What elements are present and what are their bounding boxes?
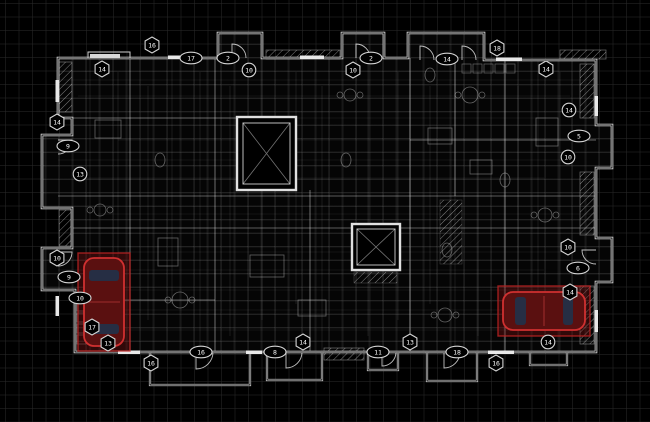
callout-bubble-hex: 14 <box>50 114 64 130</box>
callout-bubble-circle: 10 <box>561 150 575 164</box>
callout-number: 13 <box>104 339 112 347</box>
callout-bubble-oval: 5 <box>568 130 590 142</box>
callout-bubble-oval: 2 <box>360 52 382 64</box>
window-sill <box>56 296 60 316</box>
callout-number: 6 <box>576 264 580 272</box>
callout-number: 10 <box>245 66 253 74</box>
car-windshield <box>515 297 526 325</box>
callout-number: 11 <box>374 348 382 356</box>
callout-bubble-hex: 16 <box>489 355 503 371</box>
porch-wall <box>530 352 567 365</box>
window-sill <box>56 80 60 102</box>
callout-bubble-oval: 11 <box>367 346 389 358</box>
stair-hatch <box>324 348 364 360</box>
stair-hatch <box>560 50 606 59</box>
callout-number: 10 <box>53 254 61 262</box>
callout-bubble-hex: 10 <box>346 62 360 78</box>
callout-bubble-oval: 18 <box>446 346 468 358</box>
window-sill <box>90 54 120 58</box>
callout-bubble-hex: 14 <box>95 61 109 77</box>
window-sill <box>246 351 262 355</box>
callout-bubble-oval: 14 <box>436 53 458 65</box>
callout-number: 14 <box>565 106 573 114</box>
callout-bubble-oval: 9 <box>57 140 79 152</box>
window-sill <box>488 351 514 355</box>
callout-bubble-circle: 14 <box>541 335 555 349</box>
callout-number: 14 <box>566 288 574 296</box>
callout-number: 9 <box>66 142 70 150</box>
callout-number: 14 <box>544 338 552 346</box>
callout-number: 16 <box>147 359 155 367</box>
callout-bubble-hex: 13 <box>101 335 115 351</box>
callout-number: 14 <box>542 65 550 73</box>
callout-number: 14 <box>443 55 451 63</box>
callout-bubble-oval: 17 <box>180 52 202 64</box>
callout-bubble-oval: 2 <box>217 52 239 64</box>
callout-number: 10 <box>349 66 357 74</box>
callout-number: 5 <box>577 132 581 140</box>
window-sill <box>496 58 522 62</box>
porch-wall-core <box>530 352 567 365</box>
balcony-hatch <box>59 62 72 112</box>
callout-number: 16 <box>197 348 205 356</box>
window-sill <box>595 310 599 332</box>
callout-number: 14 <box>299 338 307 346</box>
balcony-hatch <box>580 64 594 118</box>
callout-number: 10 <box>76 294 84 302</box>
callout-bubble-hex: 10 <box>561 239 575 255</box>
callout-bubble-oval: 9 <box>58 271 80 283</box>
callout-number: 14 <box>98 65 106 73</box>
balcony-hatch <box>59 210 72 246</box>
floorplan-canvas[interactable]: 1416172101021418141491310910171314510106… <box>0 0 650 422</box>
callout-bubble-oval: 6 <box>567 262 589 274</box>
callout-bubble-hex: 13 <box>403 334 417 350</box>
car-windshield <box>89 270 119 281</box>
balcony-hatch <box>580 172 594 235</box>
cad-viewport[interactable]: 1416172101021418141491310910171314510106… <box>0 0 650 422</box>
callout-number: 17 <box>88 323 96 331</box>
callout-bubble-circle: 10 <box>242 63 256 77</box>
callout-bubble-circle: 13 <box>73 167 87 181</box>
callout-number: 13 <box>76 170 84 178</box>
callout-number: 16 <box>148 41 156 49</box>
callout-bubble-hex: 14 <box>539 61 553 77</box>
window-sill <box>300 56 324 60</box>
callout-number: 17 <box>187 54 195 62</box>
callout-bubble-hex: 14 <box>296 334 310 350</box>
callout-number: 18 <box>493 44 501 52</box>
callout-bubble-oval: 10 <box>69 292 91 304</box>
callout-bubble-circle: 14 <box>562 103 576 117</box>
callout-bubble-oval: 16 <box>190 346 212 358</box>
stair-hatch <box>440 200 462 264</box>
callout-number: 2 <box>369 54 373 62</box>
callout-number: 9 <box>67 273 71 281</box>
window-sill <box>595 96 599 116</box>
callout-bubble-hex: 16 <box>145 37 159 53</box>
callout-number: 10 <box>564 153 572 161</box>
callout-number: 16 <box>492 359 500 367</box>
callout-bubble-hex: 18 <box>490 40 504 56</box>
callout-bubble-oval: 8 <box>264 346 286 358</box>
callout-bubble-hex: 10 <box>50 250 64 266</box>
door-swing <box>286 352 302 368</box>
callout-bubble-hex: 16 <box>144 355 158 371</box>
callout-number: 8 <box>273 348 277 356</box>
callout-number: 10 <box>564 243 572 251</box>
callout-number: 14 <box>53 118 61 126</box>
callout-bubble-hex: 17 <box>85 319 99 335</box>
callout-number: 2 <box>226 54 230 62</box>
callout-bubble-hex: 14 <box>563 284 577 300</box>
stair-hatch <box>354 272 397 283</box>
car-rear-window <box>563 297 573 325</box>
callout-number: 18 <box>453 348 461 356</box>
callout-number: 13 <box>406 338 414 346</box>
